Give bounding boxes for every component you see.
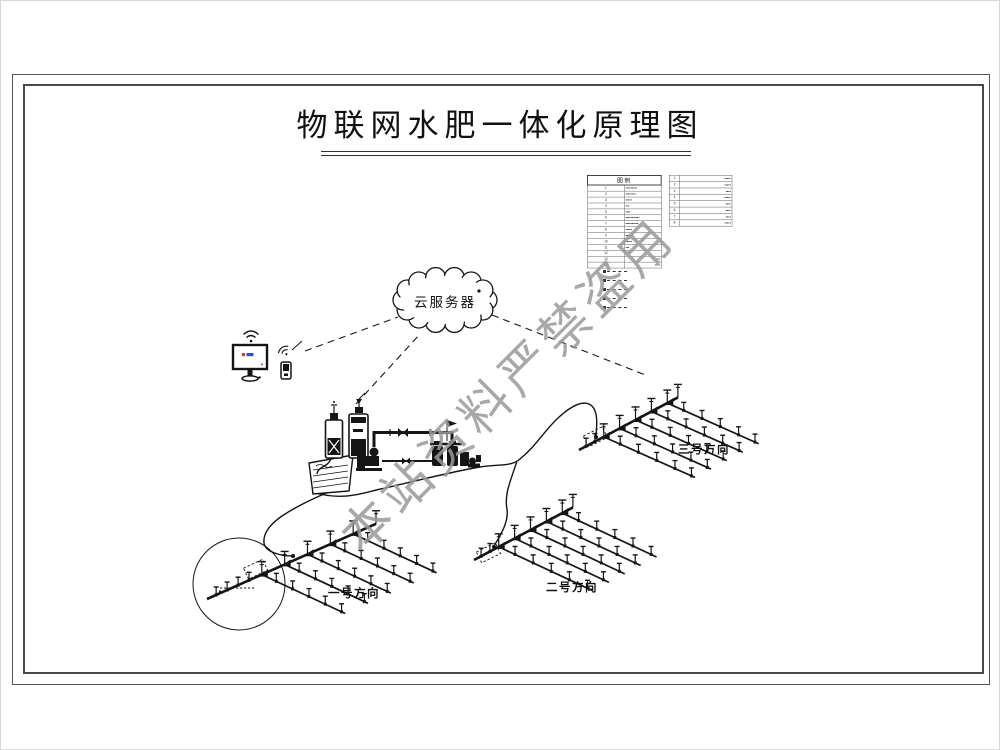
fertilizer-tank-icon xyxy=(326,401,343,458)
field-2-label: 二号方向 xyxy=(546,579,598,595)
field-1-sprinkler-grid xyxy=(207,511,437,614)
detail-annotations xyxy=(193,427,608,630)
comm-links xyxy=(305,315,648,404)
legend-note-dashed-leader xyxy=(607,298,627,301)
mobile-terminal-icon xyxy=(277,341,302,379)
field-3-sprinkler-grid xyxy=(579,384,759,477)
legend-header: 图例 xyxy=(587,175,661,185)
wifi-icon xyxy=(277,344,292,358)
field-2-sprinkler-grid xyxy=(474,494,657,590)
legend-row: 8▪▪▪▪▪ xyxy=(669,220,732,226)
filter-station-icon xyxy=(430,441,481,468)
comm-link-dashed xyxy=(356,334,420,404)
legend-notes xyxy=(607,271,627,316)
legend-note-dashed-leader xyxy=(607,307,627,310)
field-3-label: 三号方向 xyxy=(678,441,730,457)
dosing-tank-icon xyxy=(349,393,368,458)
field-1-label: 一号方向 xyxy=(328,585,380,601)
desktop-monitor-icon xyxy=(233,331,267,381)
cloud-server-label: 云服务器 xyxy=(404,291,486,311)
comm-link-dashed xyxy=(492,315,648,376)
drawing-page: 物联网水肥一体化原理图 云服务器 图例 1▪▪▪▪▪▪▪▪▪2▪▪▪▪▪▪▪▪3… xyxy=(0,0,1000,750)
legend-note-dashed-leader xyxy=(607,280,627,283)
legend-row: 14▪▪▪▪ xyxy=(587,262,661,268)
comm-link-dashed xyxy=(305,317,398,351)
fertigation-station xyxy=(309,393,481,494)
legend-table-secondary: 1▪▪▪▪▪2▪▪▪▪▪3▪▪▪▪4▪▪▪▪▪5▪▪▪▪6▪▪▪▪7▪▪▪▪8▪… xyxy=(669,175,732,226)
legend-header-row: 图例 xyxy=(587,175,661,185)
diagram-canvas xyxy=(0,0,1000,750)
legend-note-dashed-leader xyxy=(607,271,627,274)
legend-note-dashed-leader xyxy=(607,289,627,292)
water-pool-icon xyxy=(309,455,353,494)
legend-table-main: 图例 1▪▪▪▪▪▪▪▪▪2▪▪▪▪▪▪▪▪3▪▪▪▪▪4▪▪▪5▪▪▪▪6▪▪… xyxy=(587,175,662,268)
wifi-icon xyxy=(244,331,259,342)
